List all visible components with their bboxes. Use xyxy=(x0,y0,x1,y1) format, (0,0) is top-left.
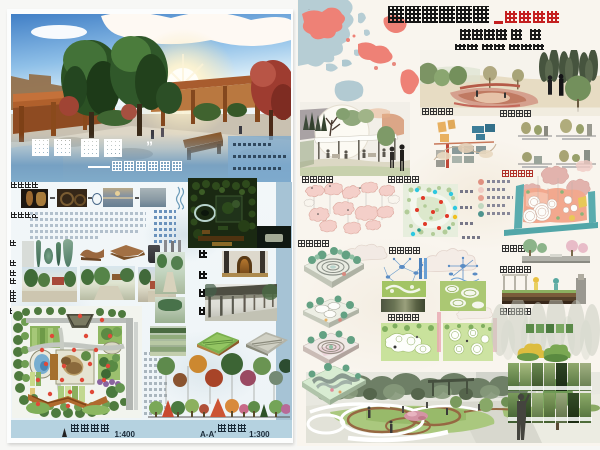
svg-text:..: .. xyxy=(308,6,310,11)
